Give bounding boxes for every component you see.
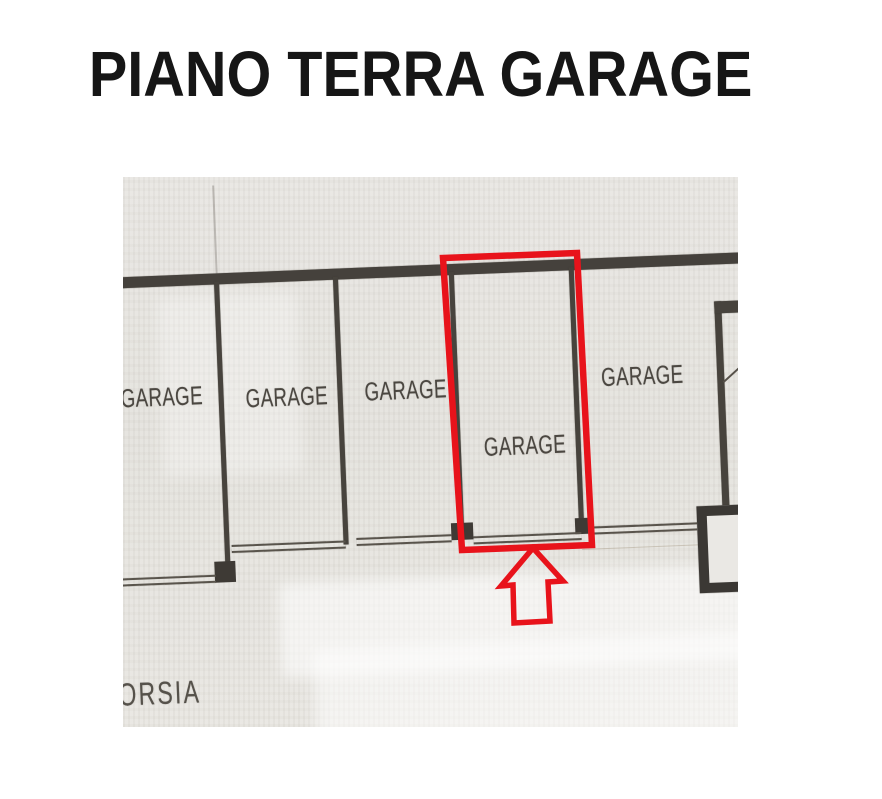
floor-plan-drawing: GARAGE GARAGE GARAGE GARAGE GARAGE ORSIA	[123, 177, 738, 727]
floor-plan: GARAGE GARAGE GARAGE GARAGE GARAGE ORSIA	[123, 177, 738, 727]
garage-door-sill-2	[232, 540, 346, 553]
wall-foot-3	[451, 522, 474, 540]
page-title-text: PIANO TERRA GARAGE	[89, 41, 752, 108]
partition-wall-4	[569, 267, 584, 523]
room-label-garage-3: GARAGE	[364, 375, 447, 404]
partition-wall-3	[449, 272, 464, 528]
garage-door-sill-3	[356, 534, 451, 546]
wall-foot-1	[214, 561, 236, 583]
garage-door-sill-5	[590, 522, 697, 534]
wall-stub-right	[714, 300, 738, 313]
page: PIANO TERRA GARAGE GAR	[0, 0, 882, 799]
garage-door-sill-1	[123, 575, 216, 587]
room-label-garage-2: GARAGE	[245, 382, 328, 411]
stairwell-room	[696, 504, 738, 593]
partition-wall-right	[714, 301, 730, 521]
door-swing-line	[723, 367, 738, 383]
page-title: PIANO TERRA GARAGE	[0, 41, 882, 108]
room-label-garage-4: GARAGE	[483, 431, 566, 460]
partition-wall-2	[333, 277, 349, 545]
room-label-garage-5: GARAGE	[601, 361, 684, 390]
faint-wall-line	[212, 185, 218, 273]
scan-light-patch	[313, 632, 738, 727]
room-label-garage-1: GARAGE	[123, 382, 203, 411]
corridor-label: ORSIA	[123, 675, 202, 710]
garage-door-sill-4	[473, 532, 581, 544]
